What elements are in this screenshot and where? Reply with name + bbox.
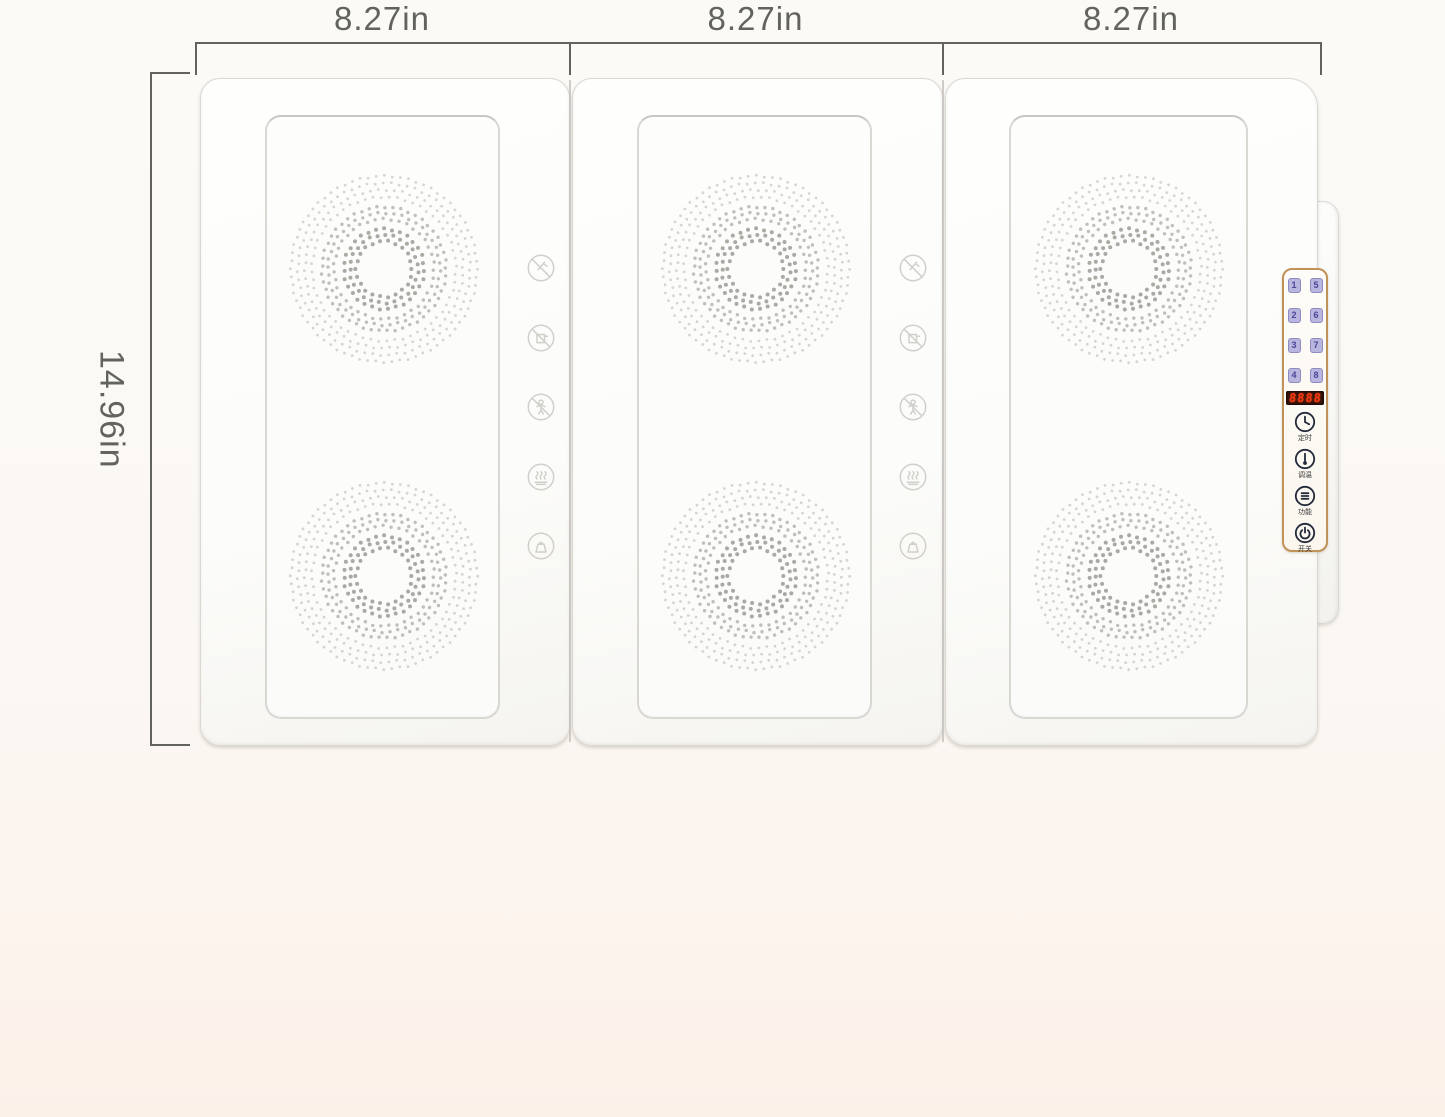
- function-button: 功能: [1293, 484, 1317, 516]
- zone-button-2: 2: [1288, 308, 1301, 323]
- no-pot-icon: [898, 323, 928, 353]
- clock-icon: [1293, 410, 1317, 434]
- led-display-value: 8888: [1288, 391, 1322, 405]
- burner-zone-icon: [656, 169, 856, 369]
- warming-panel-3: [945, 78, 1318, 746]
- burner-zone-icon: [284, 169, 484, 369]
- height-dimension-tick-bottom: [152, 744, 190, 746]
- product-dimension-diagram: 8.27in 8.27in 8.27in 14.96in 15263748 88…: [0, 0, 1445, 1117]
- hot-surface-icon: [526, 462, 556, 492]
- width-dimension-label-3: 8.27in: [942, 0, 1320, 40]
- control-panel: 15263748 8888 定时 调温: [1282, 268, 1328, 552]
- hinge-seam-1: [569, 80, 571, 742]
- function-menu-icon: [1293, 484, 1317, 508]
- panel-1-safety-icons: [526, 253, 556, 561]
- power-button: 开关: [1293, 521, 1317, 553]
- height-dimension-label: 14.96in: [88, 72, 134, 746]
- burner-zone-icon: [1029, 169, 1229, 369]
- no-pot-icon: [526, 323, 556, 353]
- led-display: 8888: [1286, 391, 1324, 405]
- width-dimension-label-1: 8.27in: [195, 0, 569, 40]
- no-touch-icon: [526, 392, 556, 422]
- burner-zone-icon: [284, 476, 484, 676]
- temperature-button-label: 调温: [1298, 472, 1312, 479]
- no-heavy-load-icon: [898, 531, 928, 561]
- zone-button-3: 3: [1288, 338, 1301, 353]
- zone-button-4: 4: [1288, 368, 1301, 383]
- warming-panel-1: [200, 78, 570, 746]
- width-dimension-bracket-3: [942, 42, 1322, 75]
- function-button-label: 功能: [1298, 509, 1312, 516]
- zone-button-8: 8: [1310, 368, 1323, 383]
- height-dimension-tick-top: [152, 72, 190, 74]
- no-knife-icon: [526, 253, 556, 283]
- hinge-seam-2: [942, 80, 944, 742]
- temperature-button: 调温: [1293, 447, 1317, 479]
- timer-button: 定时: [1293, 410, 1317, 442]
- width-dimension-label-2: 8.27in: [569, 0, 942, 40]
- height-dimension-line: [150, 72, 192, 746]
- hot-surface-icon: [898, 462, 928, 492]
- thermometer-icon: [1293, 447, 1317, 471]
- burner-zone-icon: [656, 476, 856, 676]
- power-icon: [1293, 521, 1317, 545]
- burner-zone-icon: [1029, 476, 1229, 676]
- zone-button-1: 1: [1288, 278, 1301, 293]
- zone-button-5: 5: [1310, 278, 1323, 293]
- zone-button-grid: 15263748: [1288, 278, 1323, 383]
- no-touch-icon: [898, 392, 928, 422]
- zone-button-6: 6: [1310, 308, 1323, 323]
- no-heavy-load-icon: [526, 531, 556, 561]
- panel-2-safety-icons: [898, 253, 928, 561]
- timer-button-label: 定时: [1298, 435, 1312, 442]
- width-dimension-bracket-1: [195, 42, 571, 75]
- power-button-label: 开关: [1298, 546, 1312, 553]
- no-knife-icon: [898, 253, 928, 283]
- width-dimension-bracket-2: [569, 42, 944, 75]
- zone-button-7: 7: [1310, 338, 1323, 353]
- warming-panel-2: [572, 78, 943, 746]
